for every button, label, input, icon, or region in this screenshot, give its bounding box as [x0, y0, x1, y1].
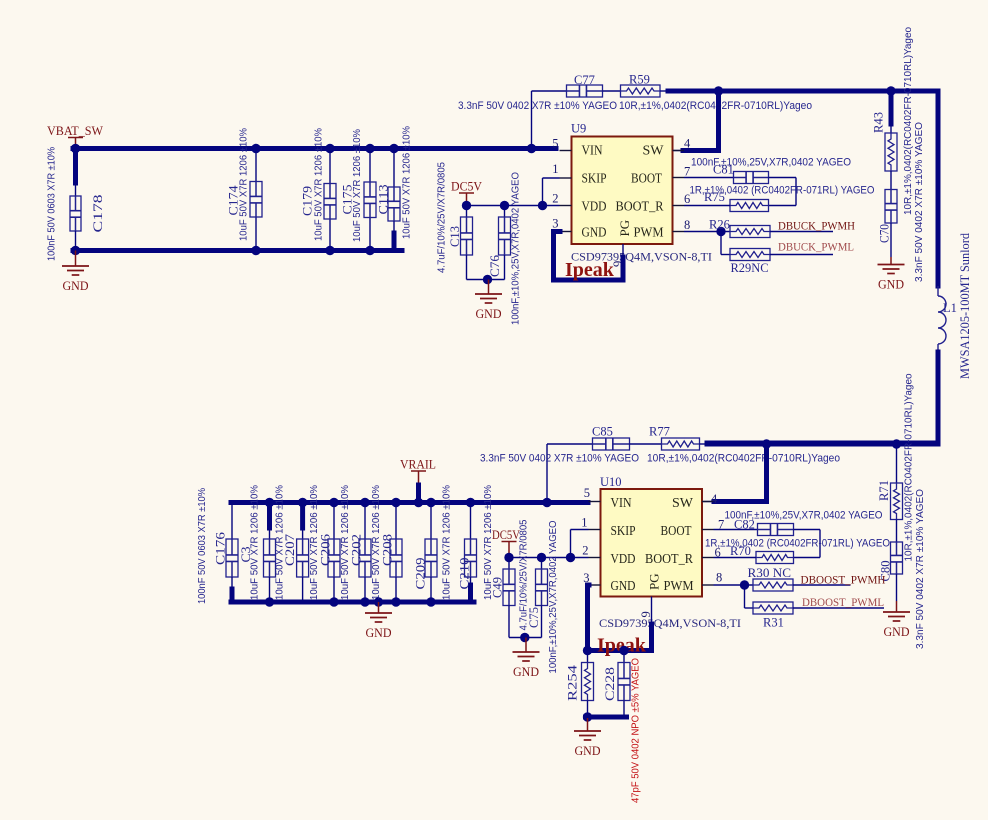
svg-text:R43: R43: [871, 112, 885, 133]
svg-text:VDD: VDD: [611, 551, 636, 566]
svg-text:10R,±1%,0402(RC0402FR-0710RL)Y: 10R,±1%,0402(RC0402FR-0710RL)Yageo: [619, 100, 812, 112]
svg-text:BOOT: BOOT: [661, 523, 693, 538]
svg-text:10uF 50V X7R 1206 ±10%: 10uF 50V X7R 1206 ±10%: [275, 485, 286, 600]
svg-text:VIN: VIN: [611, 495, 632, 510]
svg-text:GND: GND: [878, 278, 904, 292]
svg-text:10R,±1%,0402(RC0402FR-0710RL)Y: 10R,±1%,0402(RC0402FR-0710RL)Yageo: [903, 27, 914, 215]
svg-text:GND: GND: [884, 625, 910, 639]
svg-text:10uF 50V X7R 1206 ±10%: 10uF 50V X7R 1206 ±10%: [442, 485, 453, 600]
svg-text:GND: GND: [63, 279, 89, 293]
svg-text:DBOOST_PWML: DBOOST_PWML: [802, 595, 884, 609]
svg-text:C75: C75: [527, 607, 541, 628]
svg-text:100nF 50V 0603 X7R ±10%: 100nF 50V 0603 X7R ±10%: [197, 488, 208, 604]
svg-text:C13: C13: [448, 226, 462, 247]
svg-text:C228: C228: [603, 667, 617, 701]
svg-text:1R,±1%,0402 (RC0402FR-071RL) Y: 1R,±1%,0402 (RC0402FR-071RL) YAGEO: [705, 538, 890, 550]
svg-text:5: 5: [584, 486, 590, 500]
svg-text:U10: U10: [600, 475, 622, 489]
svg-text:10uF 50V X7R 1206 ±10%: 10uF 50V X7R 1206 ±10%: [250, 485, 261, 600]
svg-text:R77: R77: [649, 425, 670, 439]
svg-text:BOOT: BOOT: [631, 171, 663, 186]
svg-text:GND: GND: [366, 626, 392, 640]
svg-text:BOOT_R: BOOT_R: [616, 199, 664, 214]
svg-text:R29NC: R29NC: [731, 261, 769, 275]
svg-text:4: 4: [684, 137, 691, 151]
svg-text:U9: U9: [571, 122, 586, 136]
svg-text:PWM: PWM: [634, 225, 664, 240]
svg-text:GND: GND: [575, 744, 601, 758]
svg-text:C209: C209: [413, 558, 427, 590]
svg-text:R254: R254: [565, 664, 579, 701]
svg-text:10uF 50V X7R 1206 ±10%: 10uF 50V X7R 1206 ±10%: [239, 128, 250, 241]
svg-text:100nF 50V 0603 X7R ±10%: 100nF 50V 0603 X7R ±10%: [46, 147, 57, 261]
svg-text:VBAT_SW: VBAT_SW: [47, 124, 103, 138]
svg-text:2: 2: [582, 544, 588, 558]
svg-text:10uF 50V X7R 1206 ±10%: 10uF 50V X7R 1206 ±10%: [314, 128, 325, 241]
svg-text:3.3nF 50V 0402 X7R ±10% YAGEO: 3.3nF 50V 0402 X7R ±10% YAGEO: [480, 453, 639, 465]
svg-text:MWSA1205-100MT Sunlord: MWSA1205-100MT Sunlord: [957, 233, 972, 379]
svg-text:GND: GND: [611, 578, 636, 593]
svg-text:R71: R71: [877, 480, 891, 501]
svg-text:3: 3: [552, 217, 558, 231]
svg-text:3.3nF 50V 0402 X7R ±10% YAGEO: 3.3nF 50V 0402 X7R ±10% YAGEO: [914, 122, 925, 282]
svg-text:R26: R26: [709, 218, 730, 232]
svg-text:L1: L1: [943, 301, 957, 315]
svg-text:C202: C202: [349, 534, 363, 566]
svg-text:DC5V: DC5V: [451, 180, 482, 194]
svg-text:C70: C70: [877, 224, 891, 243]
svg-text:C77: C77: [574, 73, 595, 87]
svg-text:DC5V: DC5V: [492, 528, 520, 542]
svg-text:VDD: VDD: [582, 199, 607, 214]
svg-text:SKIP: SKIP: [582, 171, 607, 186]
svg-text:DBUCK_PWML: DBUCK_PWML: [778, 240, 854, 254]
svg-text:VRAIL: VRAIL: [400, 458, 436, 472]
svg-text:DBUCK_PWMH: DBUCK_PWMH: [778, 219, 855, 233]
svg-text:10uF 50V X7R 1206 ±10%: 10uF 50V X7R 1206 ±10%: [309, 485, 320, 600]
svg-text:SKIP: SKIP: [611, 523, 636, 538]
svg-text:C49: C49: [490, 577, 504, 598]
svg-text:BOOT_R: BOOT_R: [645, 551, 693, 566]
svg-text:47pF 50V 0402 NPO ±5% YAGEO: 47pF 50V 0402 NPO ±5% YAGEO: [631, 658, 642, 803]
svg-text:9: 9: [639, 611, 653, 617]
svg-text:1R,±1%,0402 (RC0402FR-071RL) Y: 1R,±1%,0402 (RC0402FR-071RL) YAGEO: [690, 185, 875, 197]
svg-text:10R,±1%,0402(RC0402FR-0710RL)Y: 10R,±1%,0402(RC0402FR-0710RL)Yageo: [647, 453, 840, 465]
svg-text:C210: C210: [457, 558, 471, 590]
svg-text:C208: C208: [380, 534, 394, 566]
svg-text:100nF,±10%,25V,X7R,0402 YAGEO: 100nF,±10%,25V,X7R,0402 YAGEO: [511, 172, 522, 325]
svg-text:C85: C85: [592, 425, 613, 439]
svg-text:10uF 50V X7R 1206 ±10%: 10uF 50V X7R 1206 ±10%: [352, 129, 363, 242]
svg-text:R59: R59: [629, 73, 650, 87]
svg-text:C206: C206: [318, 534, 332, 566]
svg-text:8: 8: [684, 218, 690, 232]
svg-text:GND: GND: [582, 225, 607, 240]
svg-text:C176: C176: [213, 532, 227, 565]
svg-text:PG: PG: [617, 220, 632, 237]
svg-text:10uF 50V X7R 1206 ±10%: 10uF 50V X7R 1206 ±10%: [402, 126, 413, 239]
svg-text:100nF,±10%,25V,X7R,0402 YAGEO: 100nF,±10%,25V,X7R,0402 YAGEO: [691, 157, 851, 169]
svg-text:1: 1: [581, 516, 587, 530]
svg-text:4.7uF/10%/25V/X7R/0805: 4.7uF/10%/25V/X7R/0805: [437, 162, 448, 273]
svg-text:8: 8: [716, 571, 722, 585]
svg-text:CSD97395Q4M,VSON-8,TI: CSD97395Q4M,VSON-8,TI: [599, 616, 741, 630]
svg-text:SW: SW: [643, 143, 664, 158]
svg-text:DBOOST_PWMH: DBOOST_PWMH: [801, 573, 886, 587]
svg-text:10R,±1%,0402(RC0402FR-0710RL)Y: 10R,±1%,0402(RC0402FR-0710RL)Yageo: [904, 373, 915, 561]
svg-text:10uF 50V X7R 1206 ±10%: 10uF 50V X7R 1206 ±10%: [371, 485, 382, 600]
svg-text:R30 NC: R30 NC: [748, 566, 792, 580]
svg-text:3.3nF 50V 0402 X7R ±10% YAGEO: 3.3nF 50V 0402 X7R ±10% YAGEO: [458, 100, 617, 112]
svg-text:C113: C113: [376, 185, 390, 215]
svg-text:PG: PG: [646, 573, 661, 590]
svg-text:4: 4: [711, 492, 718, 506]
svg-text:5: 5: [552, 137, 558, 151]
svg-text:7: 7: [684, 165, 690, 179]
svg-text:GND: GND: [513, 665, 539, 679]
svg-text:C179: C179: [300, 186, 314, 216]
svg-text:100nF,±10%,25V,X7R,0402 YAGEO: 100nF,±10%,25V,X7R,0402 YAGEO: [725, 510, 883, 522]
svg-text:10uF 50V X7R 1206 ±10%: 10uF 50V X7R 1206 ±10%: [340, 485, 351, 600]
svg-text:GND: GND: [476, 307, 502, 321]
svg-text:3.3nF 50V 0402 X7R ±10% YAGEO: 3.3nF 50V 0402 X7R ±10% YAGEO: [915, 489, 926, 649]
svg-text:R31: R31: [763, 616, 784, 630]
svg-text:1: 1: [552, 162, 558, 176]
svg-text:SW: SW: [672, 495, 693, 510]
svg-text:2: 2: [552, 192, 558, 206]
svg-text:PWM: PWM: [664, 578, 694, 593]
svg-text:C178: C178: [91, 195, 105, 233]
svg-text:Ipeak: Ipeak: [565, 259, 615, 281]
svg-text:C76: C76: [488, 255, 502, 277]
svg-text:100nF,±10%,25V,X7R,0402 YAGEO: 100nF,±10%,25V,X7R,0402 YAGEO: [548, 521, 559, 674]
svg-text:VIN: VIN: [582, 143, 603, 158]
